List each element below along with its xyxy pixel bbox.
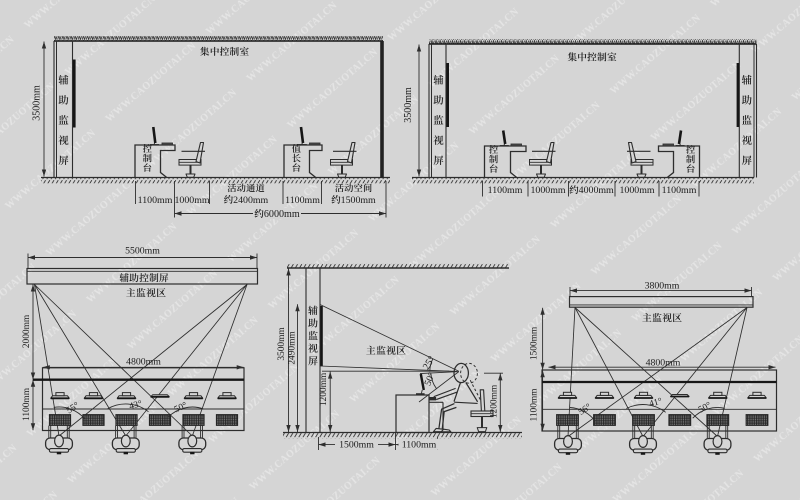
- svg-text:4800mm: 4800mm: [126, 357, 161, 368]
- svg-text:1000mm: 1000mm: [619, 185, 654, 196]
- svg-text:3500mm: 3500mm: [31, 85, 42, 121]
- svg-text:1500mm: 1500mm: [339, 440, 374, 451]
- svg-text:1200mm: 1200mm: [489, 384, 499, 418]
- svg-text:1500mm: 1500mm: [529, 326, 539, 360]
- svg-text:3500mm: 3500mm: [403, 87, 414, 123]
- svg-text:1100mm: 1100mm: [662, 185, 697, 196]
- svg-text:1200mm: 1200mm: [319, 372, 329, 406]
- svg-text:1000mm: 1000mm: [530, 185, 565, 196]
- svg-text:2400mm: 2400mm: [233, 195, 268, 206]
- svg-text:4000mm: 4000mm: [579, 185, 614, 196]
- svg-text:1000mm: 1000mm: [174, 195, 209, 206]
- svg-text:1100mm: 1100mm: [285, 195, 320, 206]
- svg-text:1500mm: 1500mm: [341, 195, 376, 206]
- svg-text:3500mm: 3500mm: [277, 327, 287, 361]
- svg-text:1100mm: 1100mm: [22, 387, 32, 421]
- svg-text:3800mm: 3800mm: [645, 281, 680, 292]
- svg-text:1100mm: 1100mm: [138, 195, 173, 206]
- svg-text:1100mm: 1100mm: [529, 388, 539, 422]
- svg-text:2000mm: 2000mm: [22, 314, 32, 348]
- svg-text:2490mm: 2490mm: [287, 331, 297, 365]
- svg-text:1100mm: 1100mm: [402, 440, 437, 451]
- svg-text:1100mm: 1100mm: [488, 185, 523, 196]
- svg-text:5500mm: 5500mm: [125, 246, 160, 257]
- svg-text:6000mm: 6000mm: [264, 209, 300, 220]
